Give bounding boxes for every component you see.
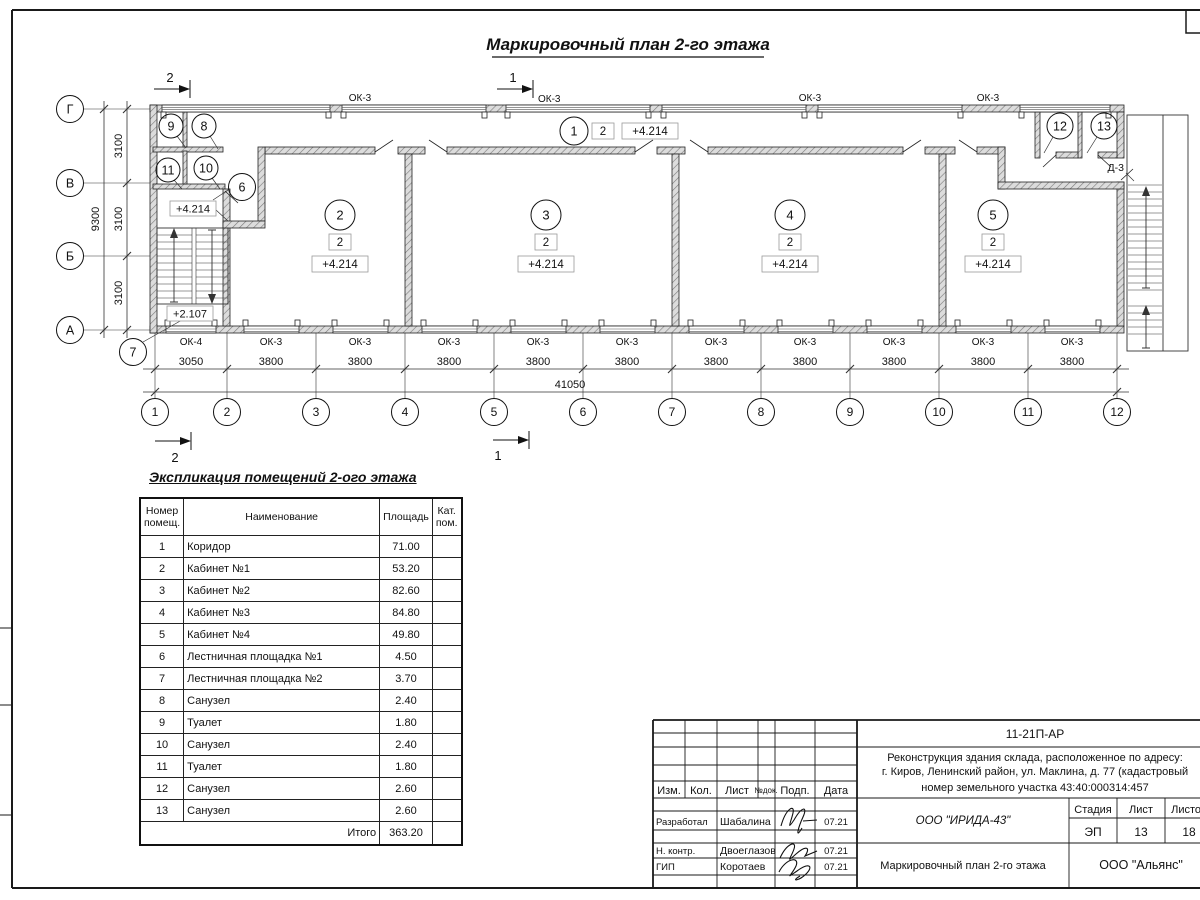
room-cat <box>432 712 461 734</box>
sheets-label: Листов <box>1171 804 1200 816</box>
total-label: Итого <box>140 822 380 846</box>
room-num: 3 <box>140 580 184 602</box>
dim-bay-10: 3800 <box>971 356 995 368</box>
axis-5: 5 <box>491 405 498 419</box>
room-area: 2.40 <box>380 734 433 756</box>
room-cat <box>432 668 461 690</box>
project-line-2: г. Киров, Ленинский район, ул. Маклина, … <box>882 766 1188 778</box>
col-izm: Изм. <box>657 785 681 797</box>
door-label-d3: Д-3 <box>1108 162 1125 174</box>
room-name: Лестничная площадка №2 <box>184 668 380 690</box>
window-label-bottom-4: ОК-3 <box>438 337 461 348</box>
room-area: 71.00 <box>380 536 433 558</box>
exterior-stair <box>1127 115 1188 351</box>
room-name: Коридор <box>184 536 380 558</box>
org-design: ООО "ИРИДА-43" <box>916 815 1012 827</box>
axis-labels-bottom: 1 2 3 4 5 6 7 8 9 10 11 12 <box>152 405 1124 419</box>
room-mark-3: 3 <box>542 208 549 223</box>
col-header-num: Номер помещ. <box>140 498 184 536</box>
dim-bay-3: 3800 <box>348 356 372 368</box>
corridor-category: 2 <box>600 126 606 138</box>
room-cat <box>432 734 461 756</box>
org-customer: ООО "Альянс" <box>1099 858 1183 872</box>
room-mark-1: 1 <box>571 125 578 139</box>
window-label-bottom-3: ОК-3 <box>349 337 372 348</box>
room-name: Кабинет №4 <box>184 624 380 646</box>
table-row: 1Коридор71.00 <box>140 536 462 558</box>
table-row: 13Санузел2.60 <box>140 800 462 822</box>
axis-10: 10 <box>932 405 946 419</box>
axis-9: 9 <box>847 405 854 419</box>
room-area: 2.40 <box>380 690 433 712</box>
table-row: 6Лестничная площадка №14.50 <box>140 646 462 668</box>
axis-v: В <box>66 177 74 191</box>
dimension-labels-bottom: 3050 3800 3800 3800 3800 3800 3800 3800 … <box>179 356 1084 391</box>
room-num: 6 <box>140 646 184 668</box>
room-num: 7 <box>140 668 184 690</box>
room-cat <box>432 536 461 558</box>
window-label-bottom-8: ОК-3 <box>794 337 817 348</box>
room-cat <box>432 756 461 778</box>
table-total-row: Итого363.20 <box>140 822 462 846</box>
room5-category: 2 <box>990 237 996 249</box>
dim-bay-9: 3800 <box>882 356 906 368</box>
signature-gip <box>779 860 810 880</box>
room-cat <box>432 800 461 822</box>
room-name: Кабинет №1 <box>184 558 380 580</box>
room-mark-7: 7 <box>130 346 137 360</box>
explication-section: Экспликация помещений 2-ого этажа Номер … <box>139 469 463 846</box>
sheets-value: 18 <box>1182 825 1196 839</box>
dim-bay-6: 3800 <box>615 356 639 368</box>
room-area: 49.80 <box>380 624 433 646</box>
room2-category: 2 <box>337 237 343 249</box>
room-area: 1.80 <box>380 712 433 734</box>
room-mark-6: 6 <box>239 181 246 195</box>
room-mark-5: 5 <box>989 208 996 223</box>
room3-level: +4.214 <box>528 259 564 271</box>
col-kol: Кол. <box>690 785 712 797</box>
window-label-bottom-2: ОК-3 <box>260 337 283 348</box>
room3-category: 2 <box>543 237 549 249</box>
room-mark-10: 10 <box>199 162 213 176</box>
dim-bay-5: 3800 <box>526 356 550 368</box>
room-cat <box>432 580 461 602</box>
table-row: 11Туалет1.80 <box>140 756 462 778</box>
page-title: Маркировочный план 2-го этажа <box>486 35 770 54</box>
room-name: Санузел <box>184 800 380 822</box>
table-row: 4Кабинет №384.80 <box>140 602 462 624</box>
room-num: 4 <box>140 602 184 624</box>
dim-bay-1: 3050 <box>179 356 203 368</box>
room-cat <box>432 602 461 624</box>
room-area: 1.80 <box>380 756 433 778</box>
window-mullion-ticks <box>161 112 1111 326</box>
axis-3: 3 <box>313 405 320 419</box>
room2-level: +4.214 <box>322 259 358 271</box>
room-num: 5 <box>140 624 184 646</box>
room-cat <box>432 778 461 800</box>
room-name: Кабинет №3 <box>184 602 380 624</box>
project-line-1: Реконструкция здания склада, расположенн… <box>887 752 1183 764</box>
axis-circles-left <box>57 96 84 344</box>
section-mark-2-top: 2 <box>166 70 173 85</box>
drawing-sheet: Маркировочный план 2-го этажа <box>0 0 1200 900</box>
doc-number: 11-21П-АР <box>1006 727 1064 741</box>
window-label-top-2: ОК-3 <box>538 94 561 105</box>
table-row: 2Кабинет №153.20 <box>140 558 462 580</box>
section-mark-1-top: 1 <box>509 70 516 85</box>
col-data: Дата <box>824 785 849 797</box>
col-list: Лист <box>725 785 749 797</box>
window-label-bottom-11: ОК-3 <box>1061 337 1084 348</box>
dim-bay-7: 3800 <box>704 356 728 368</box>
room-name: Туалет <box>184 712 380 734</box>
table-row: 12Санузел2.60 <box>140 778 462 800</box>
col-header-cat: Кат. пом. <box>432 498 461 536</box>
room4-level: +4.214 <box>772 259 808 271</box>
window-label-bottom-5: ОК-3 <box>527 337 550 348</box>
room-mark-8: 8 <box>201 120 208 134</box>
name-ncontr: Двоеглазов <box>720 845 776 857</box>
window-label-bottom-7: ОК-3 <box>705 337 728 348</box>
room-mark-4: 4 <box>786 208 793 223</box>
title-block-text: 11-21П-АР Реконструкция здания склада, р… <box>656 727 1200 873</box>
landing-level-mid: +2.107 <box>173 309 207 321</box>
room-mark-13: 13 <box>1097 120 1111 134</box>
table-row: 3Кабинет №282.60 <box>140 580 462 602</box>
exterior-stair-up-arrow <box>1142 186 1150 196</box>
name-gip: Коротаев <box>720 861 766 873</box>
window-label-bottom-6: ОК-3 <box>616 337 639 348</box>
window-label-top-4: ОК-3 <box>977 93 1000 104</box>
room-num: 1 <box>140 536 184 558</box>
axis-a: А <box>66 324 75 338</box>
room-name: Санузел <box>184 690 380 712</box>
sheet-value: 13 <box>1134 825 1148 839</box>
dim-floor-1: 3100 <box>113 134 125 158</box>
stage-value: ЭП <box>1084 825 1101 839</box>
room-area: 4.50 <box>380 646 433 668</box>
date-developer: 07.21 <box>824 817 848 828</box>
stair-down-arrow <box>208 294 216 304</box>
window-label-top-1: ОК-3 <box>349 93 372 104</box>
room-mark-11: 11 <box>162 164 175 178</box>
dim-floor-2: 3100 <box>113 207 125 231</box>
dim-bay-11: 3800 <box>1060 356 1084 368</box>
table-row: 7Лестничная площадка №23.70 <box>140 668 462 690</box>
room-name: Кабинет №2 <box>184 580 380 602</box>
window-glazing-lines <box>162 107 1110 331</box>
section-mark-1-bottom: 1 <box>494 448 501 463</box>
dim-bay-4: 3800 <box>437 356 461 368</box>
col-podp: Подп. <box>780 785 809 797</box>
axis-1: 1 <box>152 405 159 419</box>
total-cat <box>432 822 461 846</box>
room-cat <box>432 646 461 668</box>
date-gip: 07.21 <box>824 862 848 873</box>
room-num: 2 <box>140 558 184 580</box>
axis-4: 4 <box>402 405 409 419</box>
stage-label: Стадия <box>1074 804 1112 816</box>
window-label-bottom-1: ОК-4 <box>180 337 203 348</box>
room-num: 10 <box>140 734 184 756</box>
table-row: 10Санузел2.40 <box>140 734 462 756</box>
project-line-3: номер земельного участка 43:40:000314:45… <box>921 782 1149 794</box>
dim-bay-8: 3800 <box>793 356 817 368</box>
window-label-bottom-9: ОК-3 <box>883 337 906 348</box>
explication-title: Экспликация помещений 2-ого этажа <box>149 469 463 485</box>
role-gip: ГИП <box>656 862 675 873</box>
room-cat <box>432 624 461 646</box>
dimension-labels-left: 3100 3100 3100 9300 <box>90 134 125 305</box>
room-name: Санузел <box>184 778 380 800</box>
corridor-level: +4.214 <box>632 126 668 138</box>
dim-total-bottom: 41050 <box>555 379 586 391</box>
table-row: 8Санузел2.40 <box>140 690 462 712</box>
col-header-name: Наименование <box>184 498 380 536</box>
dim-total-left: 9300 <box>90 207 102 231</box>
room-mark-9: 9 <box>168 120 175 134</box>
total-area: 363.20 <box>380 822 433 846</box>
room-mark-12: 12 <box>1053 120 1067 134</box>
axis-8: 8 <box>758 405 765 419</box>
axis-circles-bottom <box>142 399 1131 426</box>
table-row: 5Кабинет №449.80 <box>140 624 462 646</box>
exterior-stair-up-arrow-2 <box>1142 305 1150 315</box>
window-label-top-3: ОК-3 <box>799 93 822 104</box>
room-num: 9 <box>140 712 184 734</box>
room-mark-2: 2 <box>336 208 343 223</box>
table-header-row: Номер помещ. Наименование Площадь Кат. п… <box>140 498 462 536</box>
drawing-name: Маркировочный план 2-го этажа <box>880 860 1046 872</box>
room-name: Туалет <box>184 756 380 778</box>
dim-floor-3: 3100 <box>113 281 125 305</box>
room-area: 3.70 <box>380 668 433 690</box>
role-ncontr: Н. контр. <box>656 846 695 857</box>
room-num: 8 <box>140 690 184 712</box>
axis-2: 2 <box>224 405 231 419</box>
signature-ncontr <box>780 844 817 859</box>
room-num: 12 <box>140 778 184 800</box>
stair-up-arrow <box>170 228 178 238</box>
col-doc: №док. <box>754 786 777 795</box>
date-ncontr: 07.21 <box>824 846 848 857</box>
room-area: 84.80 <box>380 602 433 624</box>
landing-level-main: +4.214 <box>176 204 210 216</box>
signature-developer <box>781 808 817 833</box>
room-area: 53.20 <box>380 558 433 580</box>
room-cat <box>432 558 461 580</box>
dim-bay-2: 3800 <box>259 356 283 368</box>
col-header-area: Площадь <box>380 498 433 536</box>
window-label-bottom-10: ОК-3 <box>972 337 995 348</box>
role-developer: Разработал <box>656 817 708 828</box>
explication-table: Номер помещ. Наименование Площадь Кат. п… <box>139 497 463 846</box>
room5-level: +4.214 <box>975 259 1011 271</box>
table-row: 9Туалет1.80 <box>140 712 462 734</box>
axis-7: 7 <box>669 405 676 419</box>
room-area: 2.60 <box>380 778 433 800</box>
room-name: Лестничная площадка №1 <box>184 646 380 668</box>
axis-labels-left: Г В Б А <box>66 103 75 338</box>
room-area: 2.60 <box>380 800 433 822</box>
room-num: 11 <box>140 756 184 778</box>
room-cat <box>432 690 461 712</box>
axis-g: Г <box>67 103 74 117</box>
axis-12: 12 <box>1110 405 1124 419</box>
axis-6: 6 <box>580 405 587 419</box>
signatures <box>779 808 817 880</box>
section-mark-2-bottom: 2 <box>171 450 178 465</box>
axis-b: Б <box>66 250 74 264</box>
room-area: 82.60 <box>380 580 433 602</box>
room-num: 13 <box>140 800 184 822</box>
sheet-label: Лист <box>1129 804 1153 816</box>
room-name: Санузел <box>184 734 380 756</box>
axis-11: 11 <box>1022 405 1035 419</box>
room4-category: 2 <box>787 237 793 249</box>
name-developer: Шабалина <box>720 816 771 828</box>
interior-stairs <box>157 228 228 304</box>
